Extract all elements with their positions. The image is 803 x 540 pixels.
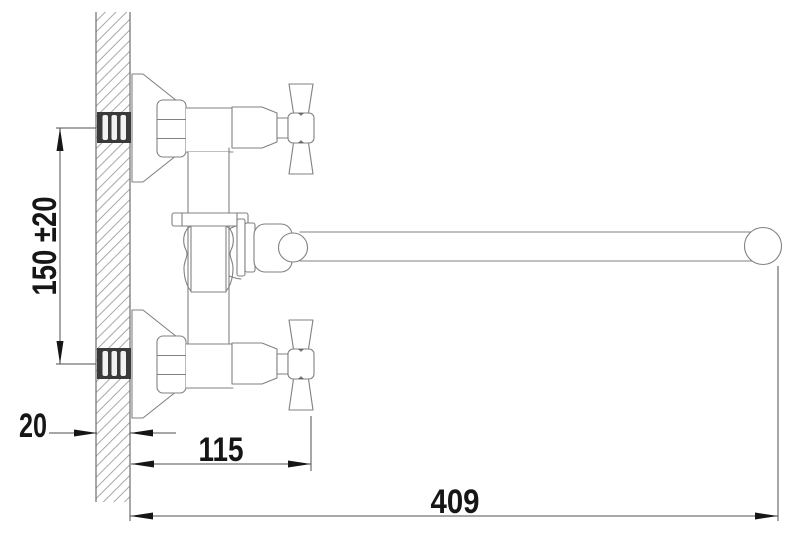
wall-section [96,12,130,521]
handle-stem-top [277,118,288,138]
supply-pipe-bottom [186,344,233,388]
valve-housing-top [232,107,277,148]
arrowhead-right [74,430,97,437]
arrowhead-left [130,430,153,437]
dim-label-wall-thickness: 20 [19,407,47,445]
hex-nut-bottom [157,336,186,393]
body-cartridge [191,226,226,292]
eccentric-fitting-bottom [97,348,131,379]
arrowhead-up [57,128,64,151]
dim-label-spout-reach: 409 [431,483,480,521]
drawing-canvas: 150 ±20 20 115 409 [0,0,803,540]
faucet-technical-drawing: 150 ±20 20 115 409 [0,0,803,540]
dim-label-wall-to-handle: 115 [199,431,244,469]
arrowhead-right [288,461,311,468]
handle-stem-bottom [277,354,288,374]
spout-end-cap [745,228,782,265]
dimension-wall-to-handle: 115 [131,416,311,471]
wall-hatching [96,12,130,502]
dim-label-mounting-centers: 150 ±20 [26,197,64,296]
hex-nut-top [157,100,186,157]
arrowhead-right [755,513,778,520]
valve-housing-bottom [232,343,277,384]
cross-handle-top [288,84,314,174]
supply-pipe-top [186,108,233,152]
dimension-mounting-centers: 150 ±20 [26,128,96,364]
swivel-nut-ring [237,219,245,276]
arrowhead-left [130,513,153,520]
cross-handle-bottom [288,320,314,410]
arrowhead-down [57,341,64,364]
spout-tube [300,232,765,261]
eccentric-fitting-top [97,112,131,143]
ball-joint [279,233,308,262]
arrowhead-left [131,461,154,468]
spout-assembly [237,219,782,276]
